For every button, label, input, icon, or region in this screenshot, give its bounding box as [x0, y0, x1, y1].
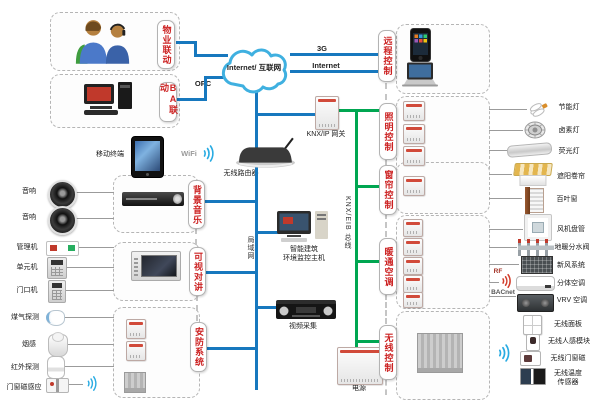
section-tag-curtain: 窗帘控制: [379, 165, 397, 215]
wire-speaker-2: [73, 218, 114, 219]
wire-door: [64, 290, 114, 291]
manifold-label: 地暖分水阀: [551, 244, 593, 253]
roller-label: 遮阳卷帘: [553, 173, 589, 182]
wireless-router-icon: [235, 138, 298, 169]
smoke-label: 烟感: [16, 341, 42, 350]
wire-vrv: [489, 296, 516, 297]
door-magnet-icon: [46, 378, 69, 393]
video-capture-label: 视频采集: [281, 323, 325, 332]
io-module-icon-2: [126, 341, 146, 361]
chain-left-1: [195, 228, 197, 245]
manifold-icon: [518, 239, 554, 256]
wire-unit: [65, 267, 114, 268]
wire-smoke: [66, 344, 114, 345]
split-ac-icon: [516, 276, 555, 291]
section-tag-property: 物业联动: [157, 20, 175, 69]
ba-cloud-line: [176, 98, 206, 101]
line-internet: [290, 70, 379, 73]
intercom-host-icon: [131, 251, 181, 281]
pir-detector-icon: [47, 356, 65, 379]
fancoil-unit-icon: [524, 214, 552, 241]
knx-bus-backbone: [355, 109, 358, 348]
wireless-pir-label: 无线人感模块: [546, 338, 592, 347]
fresh-air-label: 新风系统: [553, 262, 589, 271]
wire-speaker-1: [73, 192, 114, 193]
valve-driver-icon: [403, 238, 423, 256]
cfl-lamp-icon: [528, 99, 550, 119]
fancoil-ctrl-icon: [403, 219, 423, 237]
halogen-lamp-icon: [524, 121, 546, 139]
ba-computer-icon: [82, 82, 138, 118]
halogen-label: 卤素灯: [555, 127, 583, 136]
fluorescent-tube-icon: [507, 142, 553, 158]
monitor-host-icon: [277, 211, 331, 245]
ac-gateway-icon: [403, 292, 423, 308]
gateway-bus-line: [337, 109, 384, 112]
speaker-icon-1: [48, 180, 77, 209]
fl-dimmer-icon: [403, 146, 425, 166]
wire-tube: [489, 150, 507, 151]
speaker-label-1: 音响: [16, 188, 42, 197]
branch-knx-gateway: [258, 113, 316, 116]
split-ac-label: 分体空调: [553, 280, 589, 289]
section-tag-bgm: 背景音乐: [188, 180, 205, 229]
curtain-driver-icon: [403, 176, 425, 196]
dimmer-driver-icon: [403, 124, 425, 144]
wifi-label: WiFi: [177, 149, 201, 158]
door-label: 门口机: [12, 287, 42, 296]
cfl-label: 节能灯: [555, 104, 583, 113]
wireless-magnet-label: 无线门窗磁: [548, 355, 588, 364]
unit-label: 单元机: [12, 264, 42, 273]
mobile-phone-icon: [410, 28, 431, 62]
bgm-host-icon: [122, 192, 184, 206]
roller-blind-icon: [513, 163, 553, 176]
ba-cloud-line-v: [204, 76, 207, 101]
opc-label: OPC: [191, 79, 215, 88]
branch-bgm: [204, 200, 257, 203]
chain-left-2: [196, 295, 198, 321]
wire-splitac: [489, 282, 499, 283]
fancoil-label: 风机盘管: [553, 226, 589, 235]
knx-smart-building-diagram: 物业联动 BA联动 OPC Internet/ 互联网 3G Internet …: [0, 0, 600, 400]
lan-label: 局域网: [245, 236, 255, 260]
branch-security: [205, 347, 257, 350]
knx-bus-label: KNX/EIB 总线: [342, 196, 352, 250]
wire-fresh: [489, 264, 519, 265]
door-machine-icon: [48, 280, 66, 303]
wire-manager: [77, 247, 114, 248]
mobile-terminal-label: 移动终端: [92, 151, 128, 160]
wire-fancoil: [489, 229, 523, 230]
knx-ip-gateway-label: KNX/IP 网关: [298, 131, 354, 140]
wireless-panel-icon: [523, 315, 542, 335]
wire-gas: [63, 317, 114, 318]
ir-module-icon: [403, 275, 423, 293]
lan-backbone: [255, 92, 258, 390]
smoke-detector-icon: [48, 334, 68, 357]
section-tag-security: 安防系统: [190, 322, 207, 372]
wire-pir: [63, 366, 114, 367]
fresh-air-icon: [521, 256, 553, 274]
video-capture-icon: [276, 300, 336, 321]
branch-video: [258, 306, 278, 309]
magnet-signal-icon: [85, 375, 98, 392]
chain-right-3: [385, 213, 387, 237]
manager-label: 管理机: [12, 244, 42, 253]
section-tag-ba: BA联动: [159, 82, 177, 122]
door-magnet-label: 门窗磁感应: [2, 384, 46, 393]
bacnet-label: BACnet: [488, 289, 518, 296]
wire-manifold: [489, 247, 517, 248]
property-cloud-line: [176, 41, 196, 44]
pir-label: 红外探测: [6, 364, 44, 373]
chain-right-4: [385, 294, 387, 324]
wireless-gateway-icon: [124, 372, 146, 393]
enocean-signal-icon: [496, 343, 511, 363]
section-tag-lighting: 照明控制: [379, 103, 397, 160]
venetian-blinds-icon: [529, 188, 544, 213]
enocean-gateway-icon: [417, 333, 463, 373]
wire-blinds: [489, 198, 522, 199]
tablet-icon: [131, 136, 164, 178]
wifi-signal-icon: [201, 144, 215, 163]
section-tag-remote: 远程控制: [378, 30, 396, 82]
speaker-label-2: 音响: [16, 214, 42, 223]
wire-cfl: [489, 109, 527, 110]
chain-right-1: [385, 83, 387, 100]
unit-machine-icon: [47, 257, 67, 279]
power-supply-icon: [337, 347, 383, 385]
label-internet: Internet: [306, 61, 346, 70]
io-module-icon-1: [126, 319, 146, 339]
wireless-temp-icon: [520, 368, 546, 385]
monitor-host-label: 智能建筑环境监控主机: [272, 246, 336, 264]
gas-detector-icon: [46, 310, 65, 326]
wire-magnet: [67, 384, 83, 385]
manager-unit-icon: [46, 241, 79, 256]
wire-roller: [489, 174, 512, 175]
label-3g: 3G: [312, 44, 332, 53]
section-tag-hvac: 暖通空调: [379, 238, 397, 295]
section-tag-intercom: 可视对讲: [189, 247, 206, 296]
wireless-magnet-icon: [520, 351, 541, 366]
vrv-unit-icon: [517, 294, 554, 312]
chain-right-5: [385, 380, 387, 395]
switch-driver-icon-2: [403, 257, 423, 275]
blinds-label: 百叶窗: [553, 196, 581, 205]
power-supply-label: 电源: [345, 385, 373, 394]
laptop-icon: [402, 62, 438, 87]
wireless-panel-label: 无线面板: [550, 321, 586, 330]
rf-signal-icon: [500, 273, 512, 289]
wireless-pir-icon: [526, 334, 540, 351]
section-tag-wireless: 无线控制: [379, 325, 397, 380]
cloud-label: Internet/ 互联网: [214, 62, 294, 73]
people-icon: [72, 17, 134, 64]
fluorescent-label: 荧光灯: [555, 148, 583, 157]
switch-driver-icon-1: [403, 101, 425, 121]
knx-ip-gateway-icon: [315, 96, 339, 130]
wire-halogen: [489, 130, 523, 131]
wireless-temp-label: 无线温度传感器: [550, 370, 586, 388]
speaker-icon-2: [48, 206, 77, 235]
vrv-label: VRV 空调: [551, 297, 593, 306]
branch-intercom: [204, 271, 257, 274]
line-3g: [290, 53, 379, 56]
gas-label: 煤气探测: [6, 314, 44, 323]
